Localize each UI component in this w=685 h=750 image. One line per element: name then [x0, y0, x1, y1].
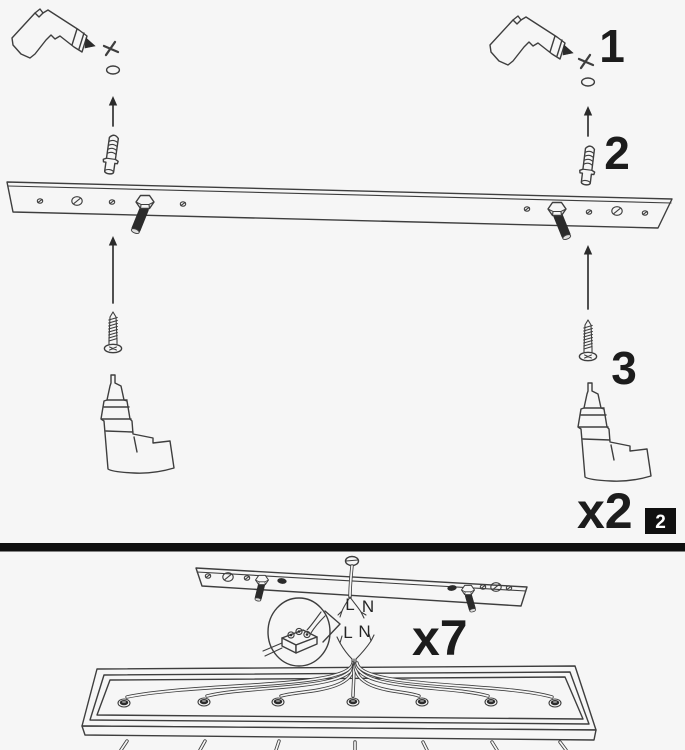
mains-neutral-label: N [362, 597, 374, 616]
instruction-sheet: 1 2 [0, 0, 685, 750]
drill-vertical-left-icon [101, 375, 174, 473]
terminal-block-detail [263, 598, 340, 666]
arrow-up-right-long [584, 245, 592, 309]
arrow-up-right-small [584, 106, 592, 136]
step-1-label: 1 [599, 20, 625, 72]
drill-angled-right-icon [490, 16, 573, 65]
fixture-neutral-label: N [358, 622, 370, 641]
drill-angled-left-icon [12, 9, 95, 58]
step-2-label: 2 [604, 127, 630, 179]
panel-wiring: L N L N x7 [82, 557, 596, 750]
mains-live-label: L [345, 595, 354, 614]
assembly-diagram: 1 2 [0, 0, 685, 750]
quantity-x2-label: x2 [577, 483, 633, 539]
wall-plug-right-icon [578, 145, 598, 185]
mounting-bar [7, 182, 672, 241]
wall-plug-left-icon [101, 134, 121, 175]
drill-vertical-right-icon [578, 383, 651, 481]
quantity-x7-label: x7 [412, 610, 468, 666]
x-drill-mark-right-icon [579, 55, 593, 68]
drilled-hole-left-icon [107, 66, 120, 74]
drilled-hole-right-icon [582, 78, 595, 86]
screw-left-icon [104, 312, 121, 353]
arrow-up-left-long [109, 236, 117, 303]
fixture-live-label: L [343, 623, 352, 642]
step-3-label: 3 [611, 342, 637, 394]
arrow-up-left-small [109, 96, 117, 126]
screw-right-icon [579, 320, 596, 361]
x-drill-mark-left-icon [104, 42, 118, 55]
panel-wall-mounting: 1 2 [7, 9, 676, 539]
section-divider [0, 543, 685, 552]
page-number: 2 [655, 512, 666, 533]
pendant-cords [121, 741, 566, 750]
page-number-badge: 2 [645, 508, 676, 534]
